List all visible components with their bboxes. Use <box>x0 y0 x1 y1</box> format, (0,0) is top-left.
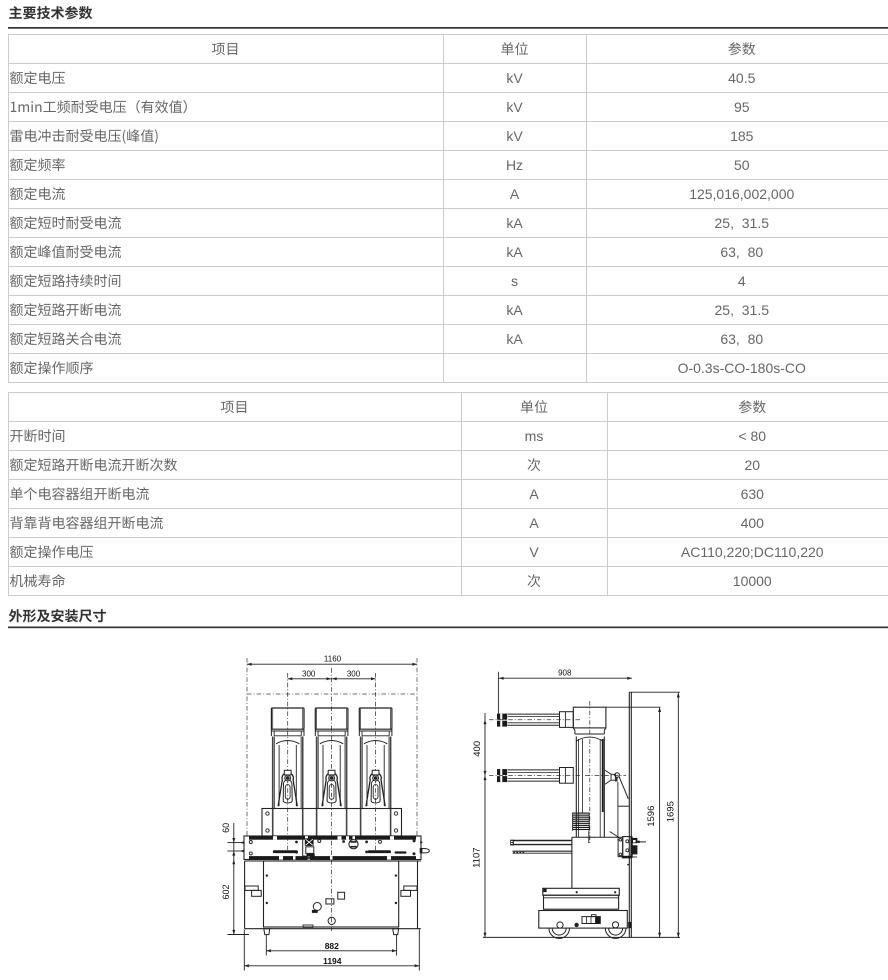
svg-text:400: 400 <box>472 741 483 757</box>
svg-text:602: 602 <box>221 884 231 899</box>
svg-text:908: 908 <box>558 669 572 678</box>
svg-text:s: s <box>511 273 518 289</box>
svg-text:Hz: Hz <box>506 157 523 173</box>
svg-text:25, 31.5: 25, 31.5 <box>715 302 770 318</box>
svg-text:AC110,220;DC110,220: AC110,220;DC110,220 <box>681 544 824 560</box>
svg-text:A: A <box>510 186 520 202</box>
svg-text:10000: 10000 <box>733 573 772 589</box>
svg-text:300: 300 <box>302 669 316 678</box>
svg-text:O-0.3s-CO-180s-CO: O-0.3s-CO-180s-CO <box>678 360 806 376</box>
svg-text:63, 80: 63, 80 <box>720 331 763 347</box>
svg-text:400: 400 <box>741 515 765 531</box>
svg-text:60: 60 <box>221 823 231 833</box>
svg-text:40.5: 40.5 <box>728 70 755 86</box>
svg-text:ms: ms <box>525 428 544 444</box>
svg-text:63, 80: 63, 80 <box>720 244 763 260</box>
svg-text:kA: kA <box>506 331 523 347</box>
svg-text:20: 20 <box>744 457 760 473</box>
svg-text:A: A <box>529 515 539 531</box>
svg-text:882: 882 <box>325 941 339 951</box>
svg-text:A: A <box>529 486 539 502</box>
svg-text:V: V <box>529 544 539 560</box>
svg-text:630: 630 <box>741 486 765 502</box>
svg-text:kV: kV <box>506 128 523 144</box>
svg-text:4: 4 <box>738 273 746 289</box>
svg-text:1194: 1194 <box>323 956 342 966</box>
svg-text:1695: 1695 <box>666 801 677 822</box>
svg-text:50: 50 <box>734 157 750 173</box>
svg-text:300: 300 <box>347 669 361 678</box>
svg-text:185: 185 <box>730 128 754 144</box>
svg-text:1107: 1107 <box>471 847 482 867</box>
svg-text:125,016,002,000: 125,016,002,000 <box>689 186 794 202</box>
svg-text:< 80: < 80 <box>738 428 766 444</box>
svg-text:kV: kV <box>506 70 523 86</box>
svg-text:kA: kA <box>506 302 523 318</box>
svg-text:kV: kV <box>506 99 523 115</box>
svg-text:kA: kA <box>506 215 523 231</box>
svg-text:1596: 1596 <box>646 806 657 827</box>
svg-text:1160: 1160 <box>324 655 342 664</box>
svg-text:kA: kA <box>506 244 523 260</box>
svg-text:25, 31.5: 25, 31.5 <box>715 215 770 231</box>
svg-text:95: 95 <box>734 99 750 115</box>
